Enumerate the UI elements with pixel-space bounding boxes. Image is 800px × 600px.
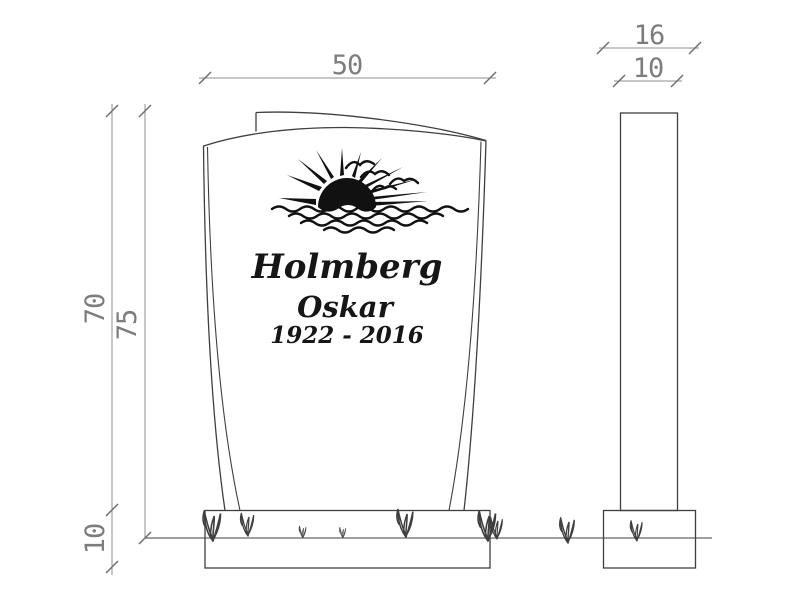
side-view [604,113,696,568]
dim-label-base-depth: 16 [634,20,665,51]
stone-right-bevel [449,142,481,511]
dimension-total-height: 75 [112,104,151,544]
dimension-base-depth: 16 [597,20,701,54]
dates-text: 1922 - 2016 [270,322,424,349]
stone-left-bevel [208,147,241,511]
dim-label-base-height: 10 [80,524,111,555]
front-view: Holmberg Oskar 1922 - 2016 [204,112,491,568]
water-waves-icon [272,207,468,233]
dim-label-front-width: 50 [332,50,363,81]
dim-label-stone-depth: 10 [633,53,664,84]
dimension-stone-depth: 10 [613,53,683,87]
dim-label-total-height: 75 [112,310,143,341]
side-base [604,511,696,569]
dimension-front-width: 50 [199,50,496,84]
side-stone [621,113,678,511]
gravestone-technical-drawing: Holmberg Oskar 1922 - 2016 50 [0,0,800,600]
dim-label-stone-height: 70 [80,294,111,325]
family-name: Holmberg [251,247,443,287]
sun-motif [272,148,468,233]
given-name: Oskar [297,290,395,324]
stone-back-top-edge [256,112,486,140]
